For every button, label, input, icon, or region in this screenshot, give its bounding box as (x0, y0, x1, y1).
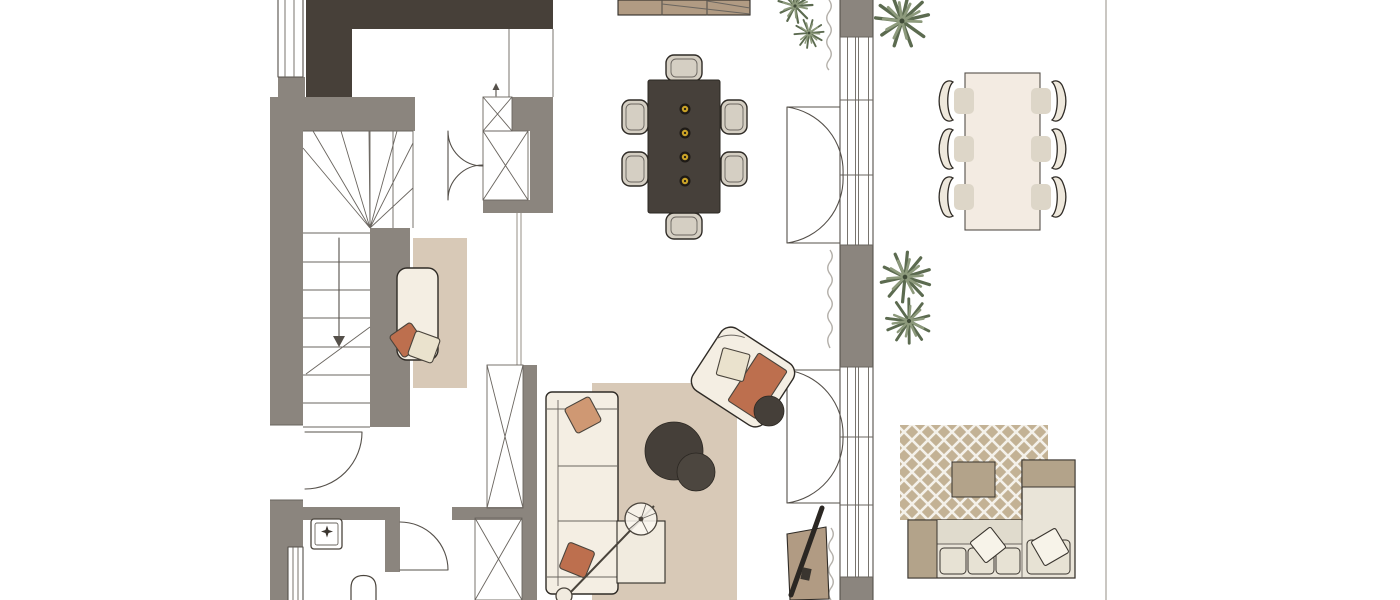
dining-chair (622, 100, 648, 134)
plant (873, 243, 939, 310)
stair-north-wall (270, 97, 415, 131)
dining-set (622, 55, 747, 239)
outdoor-dining-set (939, 73, 1066, 230)
closet-body (483, 131, 528, 200)
curtain (827, 0, 832, 70)
stair-treads (303, 233, 370, 427)
left-wall-sill (278, 77, 305, 97)
plant (789, 13, 829, 53)
chaise-headrest (1022, 460, 1075, 487)
bathroom (311, 519, 448, 600)
closet-top-wall (512, 97, 553, 131)
plant (775, 0, 814, 25)
sofa (546, 392, 618, 594)
exterior-wall-dark-leg (306, 29, 352, 97)
outdoor-lounge (900, 425, 1075, 578)
curtains (827, 0, 834, 600)
stair-break-line (306, 327, 370, 374)
dining-table (648, 80, 720, 213)
plant (881, 294, 937, 349)
window-wall-seg-mid (840, 245, 873, 367)
outdoor-dining-table (965, 73, 1040, 230)
exterior-wall-dark-top (306, 0, 553, 29)
column-right-wall-lower (522, 520, 537, 600)
wall-opening-threshold (270, 425, 303, 500)
closet-double-doors (448, 131, 483, 200)
bathroom-door (400, 522, 448, 570)
bathroom-door-jamb (385, 520, 400, 572)
left-exterior-wall-bottom (270, 547, 288, 600)
wardrobe-column-living (487, 365, 523, 508)
wardrobe-column-bath (475, 518, 522, 600)
window-top-left (278, 0, 303, 77)
wall-edge-lines (509, 29, 553, 97)
round-side-table (754, 396, 784, 426)
french-doors-upper (787, 107, 843, 243)
left-exterior-wall-lower (270, 500, 303, 547)
kitchen-island (618, 0, 750, 15)
curtain (829, 528, 834, 600)
dining-chair (622, 152, 648, 186)
dining-chair (666, 55, 702, 81)
lamp-base (556, 588, 572, 600)
floor-plan (0, 0, 1400, 600)
stair-direction-arrow (333, 238, 345, 347)
closet-bottom-wall (483, 200, 553, 213)
bathroom-top-wall-left (303, 507, 400, 520)
dining-chair (666, 213, 702, 239)
tv-console-area (787, 508, 829, 600)
window-wall-seg-top (840, 0, 873, 37)
seat-cushion (940, 548, 966, 574)
toilet (351, 576, 376, 600)
plant (876, 0, 929, 46)
dining-chair (721, 100, 747, 134)
floor-plan-canvas (0, 0, 1400, 600)
sofa-armrest (908, 520, 937, 578)
window-bottom-left (288, 547, 303, 600)
curtain (828, 250, 833, 348)
outdoor-coffee-table (952, 462, 995, 497)
living-room (546, 323, 799, 600)
stair-winders (303, 131, 413, 228)
closet-shaft (483, 83, 512, 131)
sink (311, 519, 342, 549)
entry-door (305, 432, 362, 489)
left-exterior-wall (270, 131, 303, 425)
dining-chair (721, 152, 747, 186)
window-wall-seg-bottom (840, 577, 873, 600)
terrace (900, 0, 1106, 600)
up-arrow (493, 83, 500, 90)
glass-partition (517, 213, 521, 365)
coffee-table-small (677, 453, 715, 491)
column-right-wall (523, 365, 537, 508)
french-doors-lower (787, 370, 843, 503)
